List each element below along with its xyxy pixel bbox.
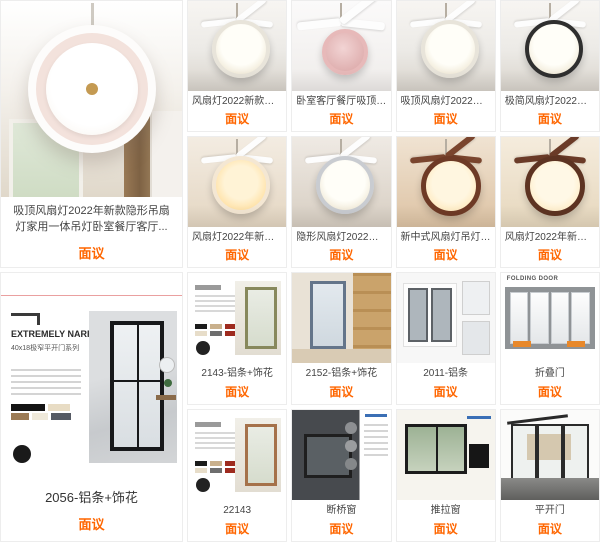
product-image[interactable] [397, 273, 495, 363]
fan-rod [91, 3, 94, 27]
product-card[interactable]: 风扇灯2022年新款隐形吊... 面议 [500, 136, 600, 268]
door-illustration [245, 287, 277, 349]
product-card-featured-fan[interactable]: 吸顶风扇灯2022年新款隐形吊扇灯家用一体吊灯卧室餐厅客厅... 面议 [0, 0, 183, 268]
product-card[interactable]: 平开门 面议 [500, 409, 600, 542]
product-title: 极简风扇灯2022年新款隐... [501, 91, 599, 107]
product-title: 2152-铝条+饰花 [292, 363, 390, 380]
product-price[interactable]: 面议 [292, 243, 390, 267]
product-card-featured-door[interactable]: EXTREMELY NARROW 40x18极窄平开门系列 205 [0, 272, 183, 542]
product-image[interactable] [501, 410, 599, 500]
window-illustration [405, 424, 467, 474]
product-title: 折叠门 [501, 363, 599, 380]
product-title: 风扇灯2022新款灯家用吸... [188, 91, 286, 107]
product-image[interactable]: EXTREMELY NARROW 40x18极窄平开门系列 [1, 273, 182, 471]
product-price[interactable]: 面议 [188, 107, 286, 131]
door-illustration [310, 281, 346, 349]
product-image[interactable] [501, 137, 599, 227]
product-image[interactable] [397, 410, 495, 500]
product-title: 2056-铝条+饰花 [1, 487, 182, 506]
product-title: 隐形风扇灯2022新款简约... [292, 227, 390, 243]
product-card[interactable]: 极简风扇灯2022年新款隐... 面议 [500, 0, 600, 132]
product-image[interactable] [397, 137, 495, 227]
product-price[interactable]: 面议 [501, 107, 599, 131]
product-title: 风扇灯2022年新款客厅隐... [188, 227, 286, 243]
product-image[interactable]: FOLDING DOOR [501, 273, 599, 363]
product-card[interactable]: 2011-铝条 面议 [396, 272, 496, 405]
product-title: 22143 [188, 500, 286, 517]
poster-label: FOLDING DOOR [507, 276, 558, 282]
product-title: 吸顶风扇灯2022年新款隐... [397, 91, 495, 107]
product-price[interactable]: 面议 [397, 243, 495, 267]
product-price[interactable]: 面议 [188, 380, 286, 404]
product-listing-page: 吸顶风扇灯2022年新款隐形吊扇灯家用一体吊灯卧室餐厅客厅... 面议 风扇灯2… [0, 0, 600, 542]
product-price[interactable]: 面议 [292, 107, 390, 131]
product-card[interactable]: 隐形风扇灯2022新款简约... 面议 [291, 136, 391, 268]
product-title: 断桥窗 [292, 500, 390, 517]
product-price[interactable]: 面议 [1, 506, 182, 537]
product-title: 新中式风扇灯吊灯客厅灯... [397, 227, 495, 243]
window-illustration [304, 434, 352, 478]
color-swatches [11, 403, 91, 421]
product-price[interactable]: 面议 [501, 380, 599, 404]
product-price[interactable]: 面议 [188, 517, 286, 541]
product-image[interactable] [501, 1, 599, 91]
product-card[interactable]: 断桥窗 面议 [291, 409, 391, 542]
folding-door-illustration [505, 287, 595, 349]
product-image[interactable] [188, 410, 286, 500]
product-card[interactable]: 风扇灯2022年新款客厅隐... 面议 [187, 136, 287, 268]
profile-swatch-icon [13, 445, 31, 463]
product-card[interactable]: 2152-铝条+饰花 面议 [291, 272, 391, 405]
product-image[interactable] [188, 137, 286, 227]
door-illustration [110, 321, 164, 451]
glass-door-illustration [511, 424, 589, 482]
product-image[interactable] [188, 273, 286, 363]
product-card[interactable]: 推拉窗 面议 [396, 409, 496, 542]
fan-section: 吸顶风扇灯2022年新款隐形吊扇灯家用一体吊灯卧室餐厅客厅... 面议 风扇灯2… [0, 0, 600, 268]
product-price[interactable]: 面议 [501, 517, 599, 541]
poster-subheading: 40x18极窄平开门系列 [11, 343, 79, 353]
door-grid: 2143-铝条+饰花 面议 2152-铝条+饰花 面议 2011-铝条 [187, 272, 600, 542]
product-price[interactable]: 面议 [188, 243, 286, 267]
product-price[interactable]: 面议 [397, 107, 495, 131]
product-card[interactable]: 吸顶风扇灯2022年新款隐... 面议 [396, 0, 496, 132]
product-title: 2143-铝条+饰花 [188, 363, 286, 380]
product-title: 2011-铝条 [397, 363, 495, 380]
door-illustration [403, 283, 457, 347]
product-image[interactable] [292, 1, 390, 91]
product-card[interactable]: FOLDING DOOR 折叠门 面议 [500, 272, 600, 405]
product-title: 平开门 [501, 500, 599, 517]
product-card[interactable]: 新中式风扇灯吊灯客厅灯... 面议 [396, 136, 496, 268]
door-illustration [245, 424, 277, 486]
product-title: 吸顶风扇灯2022年新款隐形吊扇灯家用一体吊灯卧室餐厅客厅... [1, 197, 182, 235]
product-card[interactable]: 22143 面议 [187, 409, 287, 542]
product-card[interactable]: 卧室客厅餐厅吸顶风扇灯.. 面议 [291, 0, 391, 132]
product-price[interactable]: 面议 [397, 380, 495, 404]
product-price[interactable]: 面议 [501, 243, 599, 267]
product-card[interactable]: 2143-铝条+饰花 面议 [187, 272, 287, 405]
product-image[interactable] [292, 410, 390, 500]
product-price[interactable]: 面议 [1, 235, 182, 266]
product-title: 推拉窗 [397, 500, 495, 517]
door-section: EXTREMELY NARROW 40x18极窄平开门系列 205 [0, 272, 600, 542]
product-image[interactable] [292, 273, 390, 363]
product-price[interactable]: 面议 [292, 517, 390, 541]
product-title: 风扇灯2022年新款隐形吊... [501, 227, 599, 243]
product-image[interactable] [188, 1, 286, 91]
product-price[interactable]: 面议 [397, 517, 495, 541]
product-image[interactable] [292, 137, 390, 227]
shelf-decor [150, 111, 182, 197]
product-title: 卧室客厅餐厅吸顶风扇灯.. [292, 91, 390, 107]
marble-wall-decor [89, 311, 177, 463]
fan-grid: 风扇灯2022新款灯家用吸... 面议 卧室客厅餐厅吸顶风扇灯.. 面议 [187, 0, 600, 268]
product-image[interactable] [1, 1, 182, 197]
product-price[interactable]: 面议 [292, 380, 390, 404]
product-card[interactable]: 风扇灯2022新款灯家用吸... 面议 [187, 0, 287, 132]
product-image[interactable] [397, 1, 495, 91]
